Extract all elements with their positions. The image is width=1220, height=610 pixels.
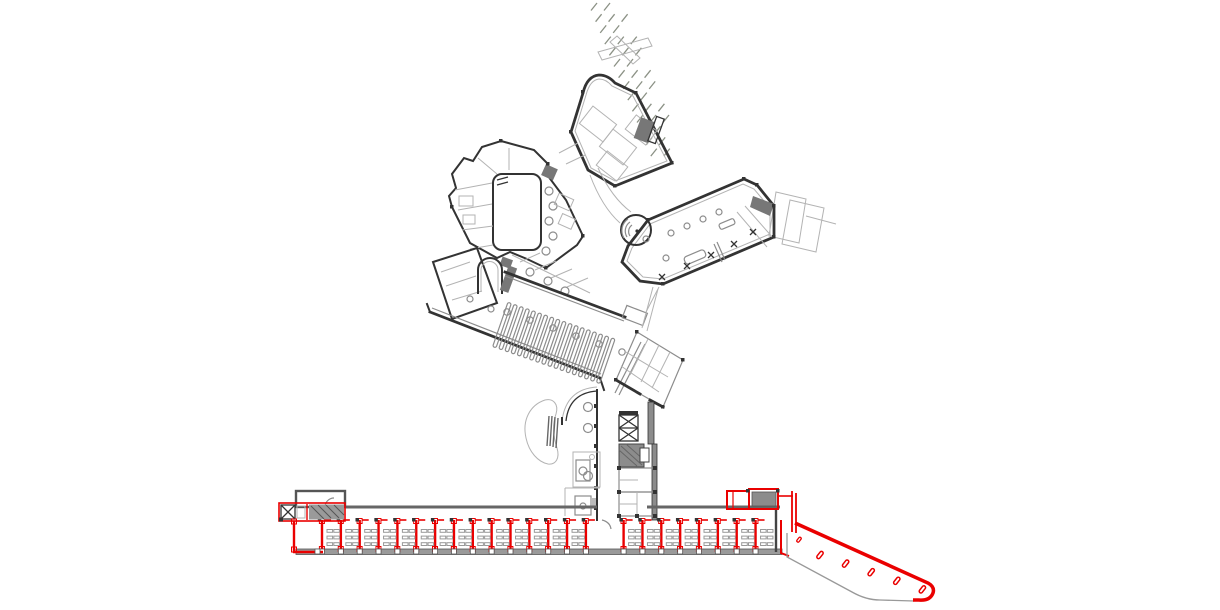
terrain-dash [609, 14, 615, 22]
bay-furniture [635, 543, 641, 546]
partition-column [487, 518, 491, 522]
bay-furniture [421, 543, 427, 546]
bay-furniture [516, 536, 522, 539]
bay-furniture [372, 530, 378, 533]
south-wall-opening [508, 549, 513, 554]
bay-furniture [353, 530, 359, 533]
bay-furniture [723, 536, 729, 539]
bay-furniture [647, 530, 653, 533]
bay-furniture [553, 536, 559, 539]
bay-furniture [409, 530, 415, 533]
bay-furniture [666, 530, 672, 533]
bay-furniture [384, 543, 390, 546]
south-wall-opening [621, 549, 626, 554]
partition-column [676, 518, 680, 522]
bay-furniture [761, 530, 767, 533]
terrain-dash [619, 70, 625, 78]
south-wall-opening [395, 549, 400, 554]
bay-furniture [749, 536, 755, 539]
partition-column [412, 518, 416, 522]
bay-furniture [767, 536, 773, 539]
terrain-dash [645, 70, 651, 78]
bay-furniture [384, 530, 390, 533]
bay-furniture [365, 530, 371, 533]
south-wall-opening [470, 549, 475, 554]
gap-door-swing [602, 520, 611, 529]
bay-furniture [497, 543, 503, 546]
wing-south-wall [296, 549, 782, 555]
terrain-dash [636, 81, 642, 89]
right-wing [621, 177, 776, 286]
terrain-crossing-paths [598, 36, 652, 64]
south-wall-opening [376, 549, 381, 554]
room-bays [318, 518, 773, 554]
bay-furniture [541, 543, 547, 546]
bay-furniture [673, 543, 679, 546]
bay-furniture [685, 543, 691, 546]
bay-furniture [730, 543, 736, 546]
bay-furniture [666, 536, 672, 539]
bay-furniture [541, 530, 547, 533]
bay-furniture [692, 536, 698, 539]
bay-furniture [522, 536, 528, 539]
partition-column [450, 518, 454, 522]
terrain-dash [596, 14, 602, 22]
terrain-dash [649, 81, 655, 89]
bay-furniture [685, 530, 691, 533]
bay-furniture [704, 530, 710, 533]
south-wall-opening [433, 549, 438, 554]
bay-furniture [478, 530, 484, 533]
bay-furniture [440, 543, 446, 546]
terrain-dash [622, 14, 628, 22]
partition-column [469, 518, 473, 522]
bay-furniture [485, 536, 491, 539]
bay-furniture [459, 530, 465, 533]
bay-furniture [428, 543, 434, 546]
bay-furniture [742, 543, 748, 546]
bay-furniture [560, 536, 566, 539]
partition-column [695, 518, 699, 522]
bay-furniture [390, 530, 396, 533]
column-x-marks [659, 229, 756, 280]
bay-furniture [522, 530, 528, 533]
partition-column [431, 518, 435, 522]
bay-furniture [334, 530, 340, 533]
south-wall-opening [338, 549, 343, 554]
partition-column [393, 518, 397, 522]
bay-furniture [503, 530, 509, 533]
bay-furniture [572, 536, 578, 539]
bay-furniture [767, 530, 773, 533]
bay-furniture [541, 536, 547, 539]
bay-furniture [711, 543, 717, 546]
top-pavilion [569, 75, 674, 188]
bay-furniture [553, 543, 559, 546]
terrain-dash [600, 25, 606, 33]
bay-furniture [723, 543, 729, 546]
bay-furniture [579, 543, 585, 546]
bay-furniture [629, 536, 635, 539]
south-wall-opening [715, 549, 720, 554]
bay-furniture [459, 543, 465, 546]
south-wall-opening [678, 549, 683, 554]
ramp-slot [919, 585, 927, 594]
bay-furniture [516, 530, 522, 533]
bay-furniture [384, 536, 390, 539]
bay-furniture [692, 530, 698, 533]
bay-furniture [440, 536, 446, 539]
bay-furniture [372, 536, 378, 539]
ramp-slot [816, 551, 824, 560]
bay-furniture [647, 536, 653, 539]
bay-furniture [327, 543, 333, 546]
south-wall-opening [414, 549, 419, 554]
bay-furniture [647, 543, 653, 546]
bay-furniture [572, 543, 578, 546]
bay-furniture [704, 536, 710, 539]
bay-furniture [654, 536, 660, 539]
bay-furniture [327, 530, 333, 533]
bay-furniture [485, 530, 491, 533]
bay-furniture [497, 530, 503, 533]
bay-furniture [711, 530, 717, 533]
classroom-block [614, 330, 685, 409]
partition-column [619, 518, 623, 522]
bay-furniture [522, 543, 528, 546]
terrain-dash [632, 70, 638, 78]
bay-furniture [346, 530, 352, 533]
partition-column [563, 518, 567, 522]
bay-furniture [749, 530, 755, 533]
bay-furniture [534, 530, 540, 533]
ramp-slot [893, 577, 901, 586]
library-column [619, 349, 625, 355]
bay-furniture [334, 543, 340, 546]
bay-furniture [749, 543, 755, 546]
bay-furniture [572, 530, 578, 533]
bay-furniture [390, 536, 396, 539]
bay-furniture [409, 536, 415, 539]
bay-furniture [553, 530, 559, 533]
bay-furniture [761, 536, 767, 539]
bay-furniture [685, 536, 691, 539]
partition-column [544, 518, 548, 522]
terrain-dash [605, 37, 611, 45]
ramp-parapet [795, 523, 933, 600]
south-wall-opening [753, 549, 758, 554]
bay-furniture [402, 543, 408, 546]
south-wall-opening [734, 549, 739, 554]
south-wall-opening [565, 549, 570, 554]
bay-furniture [654, 530, 660, 533]
bay-furniture [629, 543, 635, 546]
terrain-dash [613, 25, 619, 33]
bay-furniture [730, 530, 736, 533]
ramp-wing [787, 523, 933, 601]
bay-furniture [478, 536, 484, 539]
south-wall-opening [697, 549, 702, 554]
bay-furniture [761, 543, 767, 546]
bay-furniture [447, 530, 453, 533]
bay-furniture [365, 536, 371, 539]
bay-furniture [516, 543, 522, 546]
bay-furniture [447, 543, 453, 546]
bay-furniture [353, 543, 359, 546]
bay-furniture [579, 536, 585, 539]
ramp-slot [867, 568, 875, 577]
bay-furniture [485, 543, 491, 546]
south-wall-opening [546, 549, 551, 554]
bay-furniture [334, 536, 340, 539]
floor-plan-svg [0, 0, 1220, 610]
south-wall-opening [527, 549, 532, 554]
bay-furniture [692, 543, 698, 546]
library-stacks [493, 302, 615, 383]
bay-furniture [459, 536, 465, 539]
terrain-dash [641, 93, 647, 101]
bay-furniture [466, 543, 472, 546]
ramp-slot [842, 559, 850, 568]
bay-furniture [534, 536, 540, 539]
south-wall-opening [451, 549, 456, 554]
bay-furniture [704, 543, 710, 546]
bay-furniture [421, 530, 427, 533]
bay-furniture [711, 536, 717, 539]
bay-furniture [478, 543, 484, 546]
bay-furniture [447, 536, 453, 539]
south-wall-opening [583, 549, 588, 554]
bay-furniture [466, 530, 472, 533]
bay-furniture [503, 536, 509, 539]
central-spine [525, 387, 657, 520]
partition-column [525, 518, 529, 522]
bay-furniture [402, 536, 408, 539]
bay-furniture [428, 530, 434, 533]
partition-column [733, 518, 737, 522]
bay-furniture [409, 543, 415, 546]
bay-furniture [579, 530, 585, 533]
south-wall-opening [659, 549, 664, 554]
bay-furniture [629, 530, 635, 533]
bay-furniture [534, 543, 540, 546]
partition-column [506, 518, 510, 522]
bay-furniture [673, 536, 679, 539]
south-wall-opening [640, 549, 645, 554]
partition-column [751, 518, 755, 522]
partition-column [657, 518, 661, 522]
partition-column [714, 518, 718, 522]
bay-furniture [402, 530, 408, 533]
bay-furniture [560, 530, 566, 533]
terrain-dash [604, 3, 610, 11]
bottom-wing [279, 489, 796, 556]
bay-furniture [466, 536, 472, 539]
terrain-dash [651, 149, 657, 157]
bay-furniture [635, 530, 641, 533]
bay-furniture [365, 543, 371, 546]
terrain-dash [658, 104, 664, 112]
freeform-wall [525, 400, 558, 464]
bay-furniture [635, 536, 641, 539]
bay-furniture [346, 543, 352, 546]
elevator-shaft [619, 411, 638, 441]
partition-column [356, 518, 360, 522]
floor-plan-canvas [0, 0, 1220, 610]
south-wall-opening [357, 549, 362, 554]
bay-furniture [353, 536, 359, 539]
south-wall-opening [489, 549, 494, 554]
partition-column [582, 518, 586, 522]
bay-furniture [390, 543, 396, 546]
bay-furniture [560, 543, 566, 546]
bay-furniture [346, 536, 352, 539]
terrain-dash [614, 59, 620, 67]
partition-column [374, 518, 378, 522]
terrain-dash [591, 3, 597, 11]
bay-furniture [767, 543, 773, 546]
bay-furniture [742, 530, 748, 533]
bay-furniture [327, 536, 333, 539]
bay-furniture [497, 536, 503, 539]
bay-furniture [654, 543, 660, 546]
bay-furniture [723, 530, 729, 533]
bay-furniture [372, 543, 378, 546]
bay-furniture [742, 536, 748, 539]
partition-column [638, 518, 642, 522]
bay-furniture [440, 530, 446, 533]
bay-furniture [673, 530, 679, 533]
library-band [427, 272, 659, 390]
bay-furniture [503, 543, 509, 546]
bay-furniture [421, 536, 427, 539]
bay-furniture [666, 543, 672, 546]
bay-furniture [428, 536, 434, 539]
bay-furniture [730, 536, 736, 539]
